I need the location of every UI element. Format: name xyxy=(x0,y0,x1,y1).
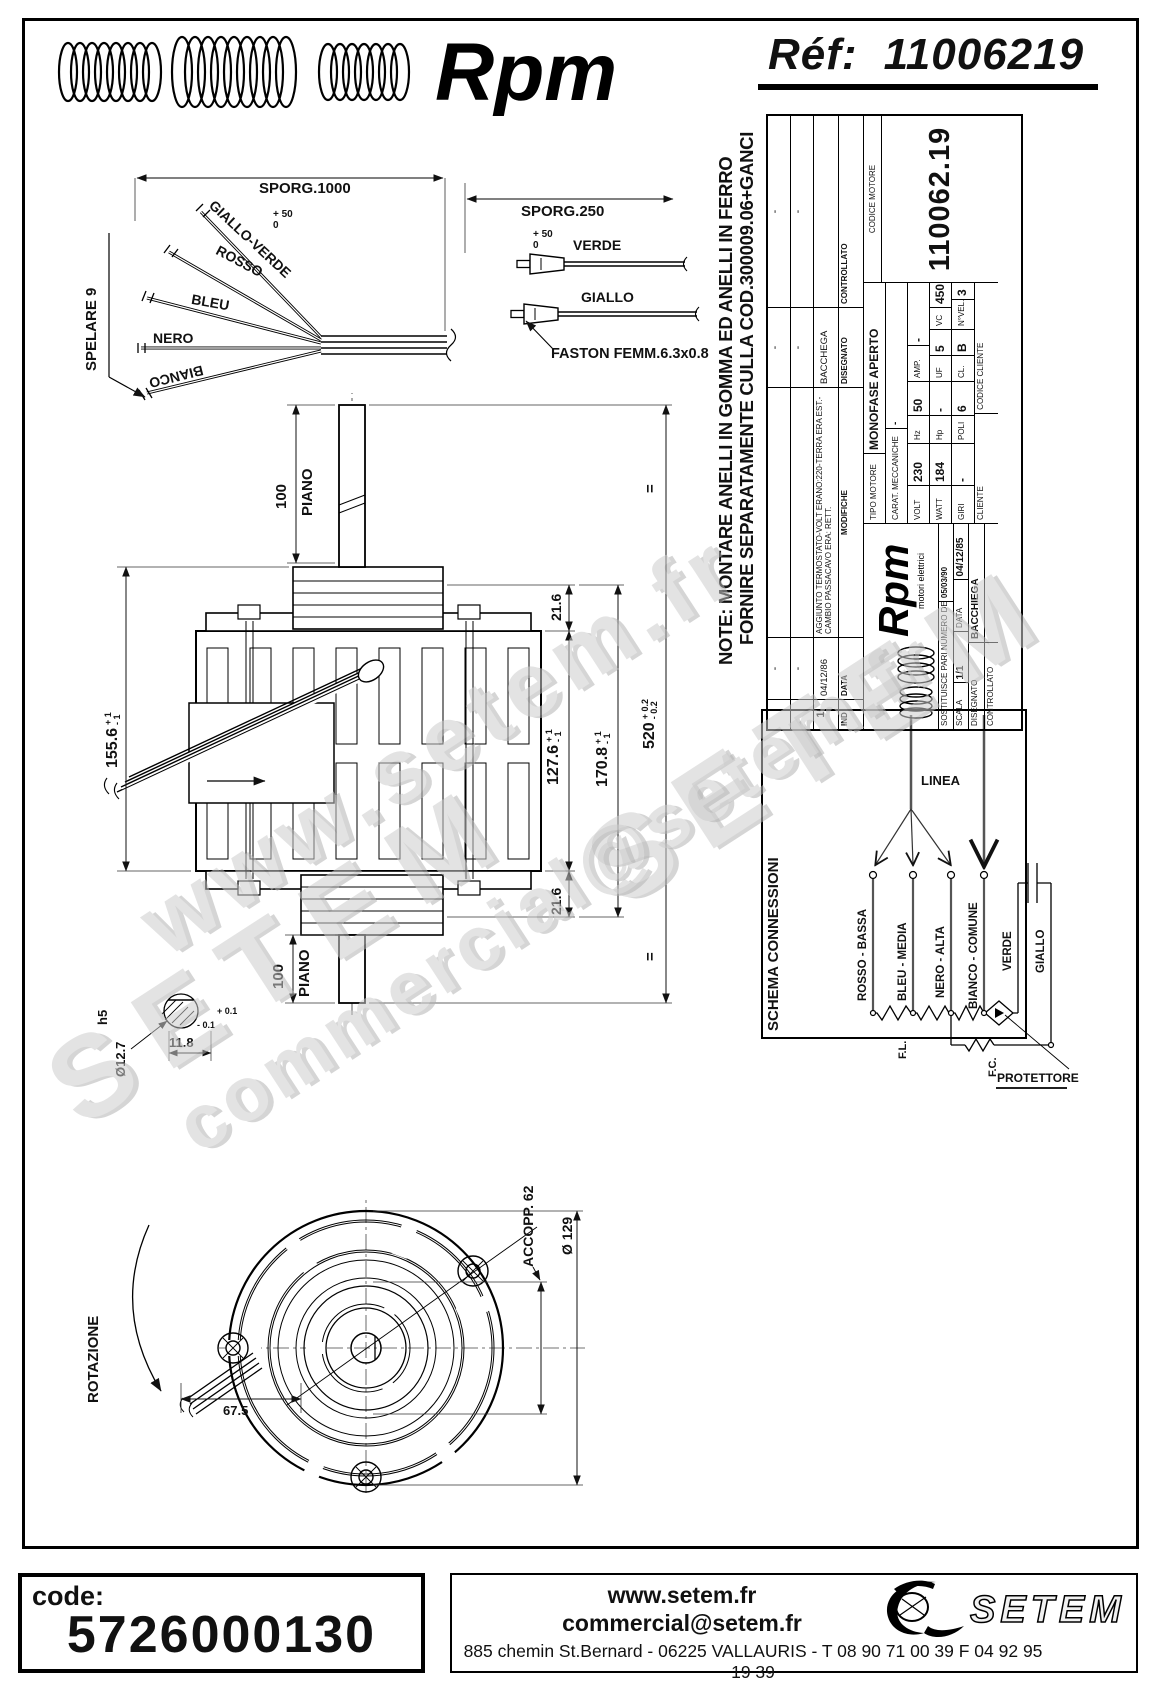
schema-fl-label: F.L. xyxy=(897,1041,909,1059)
hp-value: - xyxy=(930,381,951,415)
giri-value: - xyxy=(952,443,973,485)
sostituisce-label: SOSTITUISCE PARI NUMERO DEL xyxy=(939,601,953,729)
volt-value: 230 xyxy=(908,443,929,485)
rev-controllato-label: CONTROLLATO xyxy=(839,116,863,307)
sostituisce-value: 05/03/90 xyxy=(939,524,953,601)
rpm-mini-logo: Rpm motori elettrici xyxy=(864,529,936,729)
footer-website: www.setem.fr xyxy=(452,1582,912,1609)
dim-11-8-minus: - 0.1 xyxy=(197,1020,215,1030)
rev-date-value: 04/12/86 xyxy=(814,637,838,699)
hp-label: Hp xyxy=(930,415,951,443)
dim-11-8-plus: + 0.1 xyxy=(217,1006,237,1016)
tb-disegnato-row: DISEGNATO BACCHIEGA xyxy=(969,524,984,729)
tb-scala-row: SCALA 1/1 DATA 04/12/85 xyxy=(954,524,969,729)
code-value: 5726000130 xyxy=(22,1605,421,1665)
tol-plus: + 50 xyxy=(273,209,293,220)
data-value: 04/12/85 xyxy=(954,524,968,579)
scala-label: SCALA xyxy=(954,682,968,729)
rev-ind-label: IND xyxy=(839,699,863,729)
codice-cliente-label: CODICE CLIENTE xyxy=(975,283,998,413)
rev-cell: - xyxy=(791,637,813,699)
controllato-label: CONTROLLATO xyxy=(985,642,998,729)
data-label: DATA xyxy=(954,579,968,631)
rev-cell: - xyxy=(768,637,790,699)
disegnato-value: BACCHIEGA xyxy=(969,524,983,642)
tipo-label: TIPO MOTORE xyxy=(864,453,885,523)
disegnato-label: DISEGNATO xyxy=(969,642,983,729)
carat-row: CARAT. MECCANICHE - xyxy=(886,283,907,523)
tb-controllato-row: CONTROLLATO xyxy=(985,524,998,729)
title-block: - - - - - - 1 04/12/86 AGGIUNTO TERMOSTA… xyxy=(766,114,1023,731)
tb-left-col: Rpm motori elettrici SOSTITUISCE PARI NU… xyxy=(864,523,998,729)
dim-170-8: 170.8+ 1- 1 xyxy=(594,731,612,787)
drawing-note: NOTE: MONTARE ANELLI IN GOMMA ED ANELLI … xyxy=(715,132,757,665)
poli-value: 6 xyxy=(952,381,973,415)
nvel-label: N°VEL. xyxy=(952,299,973,329)
sporg-1000-label: SPORG.1000 xyxy=(259,180,351,197)
dim-21-6-left: 21.6 xyxy=(548,888,564,915)
uf-label: UF xyxy=(930,355,951,381)
terminal-rosso-bassa: ROSSO - BASSA xyxy=(857,909,869,1001)
amp-value: - xyxy=(908,283,929,345)
rpm-mini-brand: Rpm xyxy=(870,544,917,637)
schema-connessioni-box xyxy=(761,709,1027,1039)
faston-type-label: FASTON FEMM.6.3x0.8 xyxy=(551,346,709,362)
rpm-mini-sub: motori elettrici xyxy=(916,553,926,609)
note-line-1: NOTE: MONTARE ANELLI IN GOMMA ED ANELLI … xyxy=(715,132,736,665)
equal-mark-left: = xyxy=(642,952,659,961)
carat-value: - xyxy=(886,283,906,428)
watt-value: 184 xyxy=(930,443,951,485)
motor-side-view xyxy=(104,393,672,1061)
giri-label: GIRI xyxy=(952,485,973,523)
revision-row-empty-2: - - - xyxy=(791,116,814,729)
note-line-2: FORNIRE SEPARATAMENTE CULLA COD.300009.0… xyxy=(736,132,757,645)
sporg-1000-tolerance: + 500 xyxy=(273,209,293,231)
ref-value: 11006219 xyxy=(884,30,1085,79)
diameter-129-label: Ø 129 xyxy=(559,1217,575,1255)
drawing-sheet: Rpm Réf:11006219 xyxy=(0,0,1158,1690)
tb-codice-col: CODICE MOTORE 110062.19 xyxy=(864,116,998,282)
terminal-bianco-comune: BIANCO - COMUNE xyxy=(968,902,980,1009)
accopp-62-label: ACCOPP. 62 xyxy=(520,1186,536,1267)
poli-label: POLI xyxy=(952,415,973,443)
dim-h5: h5 xyxy=(95,1010,110,1025)
uf-value: 5 xyxy=(930,329,951,355)
cliente-label: CLIENTE xyxy=(975,413,998,523)
ref-label: Réf: xyxy=(768,30,858,79)
dim-520: 520+ 0.2- 0.2 xyxy=(641,699,659,749)
controllato-value xyxy=(985,524,998,642)
setem-logo-text: SETEM xyxy=(970,1589,1126,1631)
motor-front-view xyxy=(133,1197,585,1493)
linea-label: LINEA xyxy=(921,773,960,788)
dim-127-6: 127.6+ 1- 1 xyxy=(545,729,563,785)
giri-row: GIRI - POLI 6 CL. B N°VEL. 3 xyxy=(952,283,974,523)
setem-logo: SETEM xyxy=(872,1577,1130,1639)
volt-label: VOLT xyxy=(908,485,929,523)
cl-value: B xyxy=(952,329,973,355)
rev-cell xyxy=(768,699,790,729)
dim-100-left: 100 xyxy=(270,964,287,989)
reference-number: Réf:11006219 xyxy=(758,30,1098,90)
carat-label: CARAT. MECCANICHE xyxy=(886,428,906,523)
rev-cell xyxy=(791,699,813,729)
hz-value: 50 xyxy=(908,381,929,415)
tb-logo-cell: Rpm motori elettrici xyxy=(864,524,939,729)
vc-value: 450 xyxy=(930,283,951,307)
tipo-value: MONOFASE APERTO xyxy=(864,283,885,453)
codice-motore-label: CODICE MOTORE xyxy=(864,116,882,282)
rev-cell: - xyxy=(768,116,790,307)
rpm-coils-icon xyxy=(59,37,409,107)
watt-label: WATT xyxy=(930,485,951,523)
equal-mark-right: = xyxy=(642,484,659,493)
rev-cell xyxy=(814,116,838,307)
code-box: code: 5726000130 xyxy=(18,1573,425,1673)
terminal-nero-alta: NERO - ALTA xyxy=(935,926,947,998)
spelare-label: SPELARE 9 xyxy=(83,288,100,371)
cliente-row: CLIENTE CODICE CLIENTE xyxy=(975,283,998,523)
tipo-motore-row: TIPO MOTORE MONOFASE APERTO xyxy=(864,283,886,523)
tol-minus: 0 xyxy=(273,220,279,231)
wire-label-nero: NERO xyxy=(153,330,193,346)
title-block-main: Rpm motori elettrici SOSTITUISCE PARI NU… xyxy=(864,116,998,729)
rev-ind-value: 1 xyxy=(814,699,838,729)
watt-row: WATT 184 Hp - UF 5 VC 450 xyxy=(930,283,952,523)
sporg-250-label: SPORG.250 xyxy=(521,203,604,220)
scala-value: 1/1 xyxy=(954,631,968,683)
dim-piano-right: PIANO xyxy=(299,468,316,516)
rpm-logo: Rpm xyxy=(40,26,680,116)
schema-title: SCHEMA CONNESSIONI xyxy=(765,857,782,1031)
tol-minus: 0 xyxy=(533,240,539,251)
verde-lead-label: VERDE xyxy=(573,237,621,253)
amp-label: AMP. xyxy=(908,345,929,381)
rev-disegnato-label: DISEGNATO xyxy=(839,307,863,387)
footer-email: commercial@setem.fr xyxy=(452,1610,912,1637)
giallo-lead-label: GIALLO xyxy=(581,289,634,305)
revision-header-row: IND DATA MODIFICHE DISEGNATO CONTROLLATO xyxy=(839,116,864,729)
revision-row-empty-1: - - - xyxy=(768,116,791,729)
dim-21-6-right: 21.6 xyxy=(548,594,564,621)
dim-11-8: 11.8 xyxy=(169,1035,194,1050)
setem-swoosh-icon xyxy=(887,1581,964,1637)
footer-address: 885 chemin St.Bernard - 06225 VALLAURIS … xyxy=(458,1641,1048,1683)
schema-giallo-label: GIALLO xyxy=(1035,930,1047,973)
rev-cell xyxy=(768,387,790,637)
rev-modifiche-value: AGGIUNTO TERMOSTATO-VOLT ERANO:220-TERRA… xyxy=(814,387,838,637)
cl-label: CL. xyxy=(952,355,973,381)
rev-cell: - xyxy=(791,307,813,387)
rotazione-label: ROTAZIONE xyxy=(85,1316,102,1403)
volt-row: VOLT 230 Hz 50 AMP. - xyxy=(908,283,930,523)
terminal-bleu-media: BLEU - MEDIA xyxy=(897,922,909,1001)
nvel-value: 3 xyxy=(952,283,973,299)
rev-modifiche-label: MODIFICHE xyxy=(839,387,863,637)
protettore-label: PROTETTORE xyxy=(997,1071,1079,1085)
dim-67-5: 67.5 xyxy=(223,1403,248,1418)
rev-cell xyxy=(791,387,813,637)
vc-label: VC xyxy=(930,307,951,329)
footer-contact-box: www.setem.fr commercial@setem.fr 885 che… xyxy=(450,1573,1138,1673)
codice-motore-value: 110062.19 xyxy=(882,116,998,282)
dim-diameter-12-7: Ø12.7 xyxy=(113,1042,128,1077)
revision-row-1: 1 04/12/86 AGGIUNTO TERMOSTATO-VOLT ERAN… xyxy=(814,116,839,729)
rev-firma-value: BACCHEGA xyxy=(814,307,838,387)
rev-cell: - xyxy=(768,307,790,387)
rev-cell: - xyxy=(791,116,813,307)
dim-155-6: 155.6+ 1- 1 xyxy=(104,712,122,768)
schema-verde-label: VERDE xyxy=(1002,931,1014,971)
tb-sostituisce-row: SOSTITUISCE PARI NUMERO DEL 05/03/90 xyxy=(939,524,954,729)
rev-data-label: DATA xyxy=(839,637,863,699)
tb-spec-col: TIPO MOTORE MONOFASE APERTO CARAT. MECCA… xyxy=(864,282,998,523)
hz-label: Hz xyxy=(908,415,929,443)
rotated-drawing-canvas: SPELARE 9 NERO BLEU ROSSO GIALLO-VERDE B… xyxy=(21,41,1136,1661)
dim-piano-left: PIANO xyxy=(296,949,313,997)
dim-100-right: 100 xyxy=(273,484,290,509)
sporg-250-tolerance: + 500 xyxy=(533,229,553,251)
rpm-brand-text: Rpm xyxy=(435,27,617,116)
tol-plus: + 50 xyxy=(533,229,553,240)
